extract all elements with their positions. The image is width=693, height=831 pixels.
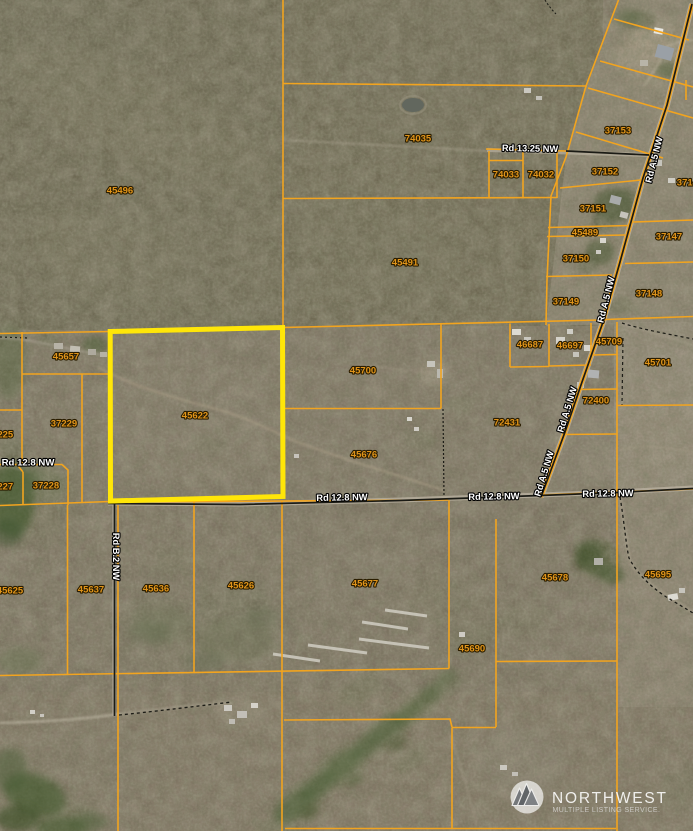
svg-text:72400: 72400 — [583, 396, 609, 407]
svg-text:45676: 45676 — [351, 450, 377, 461]
svg-text:45709: 45709 — [596, 337, 622, 348]
svg-text:45626: 45626 — [228, 581, 254, 592]
svg-text:37228: 37228 — [33, 481, 59, 492]
svg-text:45657: 45657 — [53, 352, 79, 363]
svg-text:45225: 45225 — [0, 430, 14, 441]
svg-text:45637: 45637 — [78, 585, 104, 596]
svg-text:46687: 46687 — [517, 340, 543, 351]
svg-text:37229: 37229 — [51, 419, 77, 430]
svg-text:37148: 37148 — [636, 289, 662, 300]
svg-text:45690: 45690 — [459, 644, 485, 655]
svg-text:MULTIPLE LISTING SERVICE.: MULTIPLE LISTING SERVICE. — [553, 807, 661, 814]
svg-text:45701: 45701 — [645, 358, 672, 369]
svg-text:74033: 74033 — [493, 170, 519, 181]
svg-text:45496: 45496 — [107, 186, 133, 197]
svg-text:45622: 45622 — [182, 411, 208, 422]
svg-text:37149: 37149 — [553, 297, 579, 308]
svg-text:37150: 37150 — [563, 254, 589, 265]
svg-text:37146: 37146 — [677, 178, 693, 189]
svg-text:Rd 12.8 NW: Rd 12.8 NW — [316, 492, 368, 503]
svg-text:45678: 45678 — [542, 573, 568, 584]
svg-text:37152: 37152 — [592, 167, 618, 178]
svg-text:37227: 37227 — [0, 482, 13, 493]
svg-text:45491: 45491 — [392, 258, 419, 269]
svg-text:Rd B.2 NW: Rd B.2 NW — [111, 533, 121, 581]
svg-text:Rd 13.25 NW: Rd 13.25 NW — [502, 143, 559, 154]
svg-text:37151: 37151 — [580, 204, 607, 215]
svg-text:37153: 37153 — [605, 126, 631, 137]
svg-text:45677: 45677 — [352, 579, 378, 590]
svg-text:NORTHWEST: NORTHWEST — [552, 790, 668, 807]
svg-text:45700: 45700 — [350, 366, 376, 377]
svg-text:45625: 45625 — [0, 586, 24, 597]
svg-text:Rd 12.8 NW: Rd 12.8 NW — [2, 458, 56, 469]
svg-text:45636: 45636 — [143, 584, 169, 595]
svg-text:72431: 72431 — [494, 418, 521, 429]
svg-text:Rd 12.8 NW: Rd 12.8 NW — [582, 488, 634, 499]
svg-text:74032: 74032 — [528, 170, 554, 181]
svg-text:45489: 45489 — [572, 228, 598, 239]
svg-text:46697: 46697 — [557, 341, 583, 352]
svg-text:Rd 12.8 NW: Rd 12.8 NW — [468, 491, 520, 502]
svg-text:45695: 45695 — [645, 570, 672, 581]
svg-text:74035: 74035 — [405, 134, 432, 145]
svg-text:37147: 37147 — [656, 232, 682, 243]
